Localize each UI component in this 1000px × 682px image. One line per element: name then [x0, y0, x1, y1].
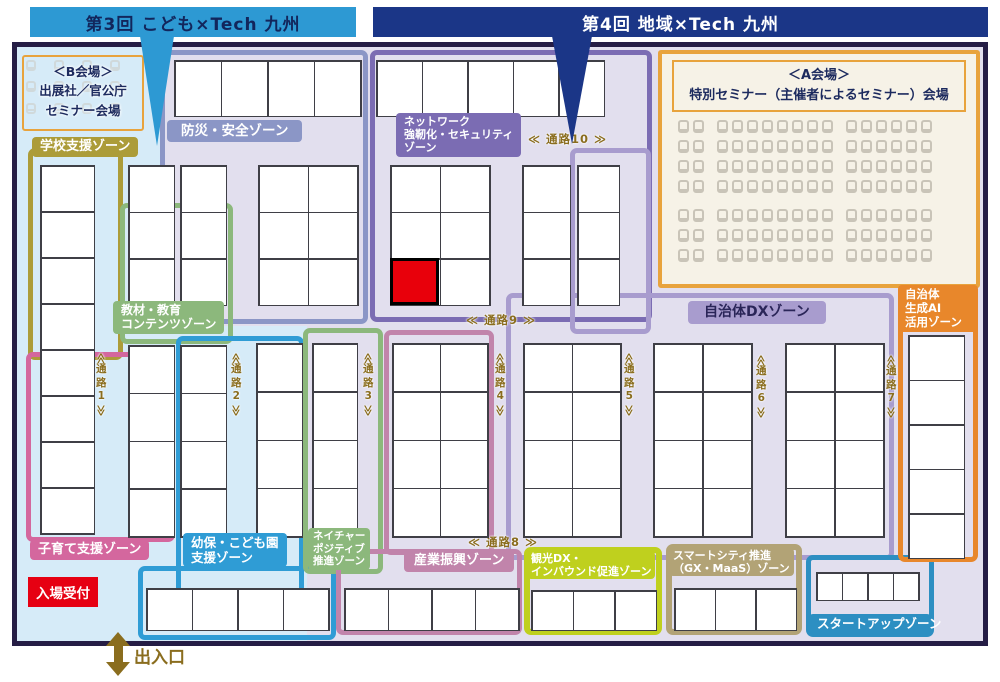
seat-icon	[777, 160, 788, 173]
arrow-stem	[114, 646, 123, 662]
seat-icon	[921, 140, 932, 153]
booth	[579, 213, 619, 258]
zone-label-school: 学校支援ゾーン	[32, 137, 138, 157]
seat-icon	[792, 120, 803, 133]
booth	[573, 441, 620, 488]
seat-icon	[906, 140, 917, 153]
booth	[258, 489, 302, 536]
seat-icon	[807, 180, 818, 193]
booth	[525, 345, 572, 392]
seat-icon	[876, 140, 887, 153]
seat-row	[678, 209, 932, 222]
booth-grid-col3-lower	[180, 345, 227, 538]
booth-grid-col4-lower	[256, 343, 303, 538]
zone-label-yoho: 幼保・こども園支援ゾーン	[183, 533, 287, 567]
booth	[130, 490, 174, 536]
zone-label-childcare: 子育て支援ゾーン	[30, 540, 149, 560]
seat-icon	[678, 160, 689, 173]
seat-icon	[678, 180, 689, 193]
seat-icon	[717, 160, 728, 173]
booth	[42, 443, 94, 488]
booth	[787, 441, 835, 488]
booth	[258, 393, 302, 440]
arrow-up-icon	[106, 632, 130, 646]
seat-icon	[822, 249, 833, 262]
booth	[260, 260, 308, 305]
seat-icon	[822, 209, 833, 222]
seat-icon	[876, 160, 887, 173]
seat-icon	[822, 140, 833, 153]
banner-kodomo-tech: 第3回 こども×Tech 九州	[30, 7, 356, 37]
booth	[910, 337, 964, 380]
seat-row	[678, 120, 932, 133]
seat-icon	[906, 180, 917, 193]
booth	[378, 62, 422, 116]
seat-icon	[777, 229, 788, 242]
booth	[130, 347, 174, 393]
seat-row	[678, 229, 932, 242]
seat-icon	[792, 229, 803, 242]
venue-floor-map: 第3回 こども×Tech 九州 第4回 地域×Tech 九州 ＜B会場＞出展社／…	[0, 0, 1000, 682]
booth	[716, 590, 755, 630]
booth	[182, 347, 226, 393]
booth	[258, 345, 302, 392]
seat-icon	[792, 180, 803, 193]
seat-icon	[732, 120, 743, 133]
seat-icon	[906, 209, 917, 222]
booth	[258, 441, 302, 488]
seat-icon	[717, 180, 728, 193]
booth-grid-bosai-grid	[258, 165, 359, 306]
seat-icon	[732, 160, 743, 173]
booth	[818, 574, 842, 600]
booth	[787, 393, 835, 440]
booth	[441, 393, 487, 440]
seat-icon	[906, 160, 917, 173]
booth	[130, 167, 174, 212]
booth-grid-dx-grid-1	[523, 343, 622, 538]
seat-icon	[861, 249, 872, 262]
booth	[346, 590, 388, 630]
seat-icon	[747, 180, 758, 193]
seat-icon	[891, 249, 902, 262]
zone-label-startup: スタートアップゾーン	[809, 614, 931, 633]
booth	[910, 470, 964, 513]
zone-label-dx: 自治体DXゾーン	[688, 301, 826, 324]
booth-grid-network-col-right	[522, 165, 571, 306]
seat-icon	[777, 249, 788, 262]
seat-icon	[678, 229, 689, 242]
booth	[524, 167, 570, 212]
seat-icon	[717, 209, 728, 222]
seat-icon	[693, 249, 704, 262]
booth	[314, 393, 357, 440]
booth-grid-dx-arm-col	[577, 165, 620, 306]
seat-icon	[921, 229, 932, 242]
seat-icon	[876, 180, 887, 193]
booth	[676, 590, 715, 630]
seat-icon	[693, 229, 704, 242]
seat-icon	[861, 229, 872, 242]
booth	[655, 489, 703, 536]
booth	[441, 213, 489, 258]
seat-icon	[822, 160, 833, 173]
booth	[757, 590, 796, 630]
booth	[524, 213, 570, 258]
booth	[389, 590, 431, 630]
booth	[441, 167, 489, 212]
seat-icon	[846, 180, 857, 193]
booth	[836, 393, 884, 440]
booth	[269, 62, 314, 116]
seat-icon	[846, 229, 857, 242]
booth	[525, 393, 572, 440]
aisle-4-label: ≪通路4≫	[495, 352, 506, 415]
seat-icon	[846, 140, 857, 153]
seat-icon	[906, 229, 917, 242]
seat-icon	[822, 229, 833, 242]
seat-icon	[678, 249, 689, 262]
seat-row	[678, 160, 932, 173]
booth-grid-smart-row	[674, 588, 797, 631]
aisle-9-label: ≪ 通路9 ≫	[466, 312, 536, 328]
booth	[441, 489, 487, 536]
seat-icon	[861, 120, 872, 133]
seat-icon	[891, 160, 902, 173]
booth	[579, 167, 619, 212]
seat-icon	[693, 140, 704, 153]
hall-a-seats	[678, 120, 932, 262]
seat-icon	[921, 160, 932, 173]
hall-b-label: ＜B会場＞出展社／官公庁セミナー会場	[24, 62, 142, 120]
zone-label-nature: ネイチャーポジティブ推進ゾーン	[308, 528, 370, 570]
seat-icon	[807, 160, 818, 173]
booth-grid-nature-col	[312, 343, 358, 538]
booth	[525, 489, 572, 536]
seat-icon	[762, 120, 773, 133]
seat-icon	[717, 140, 728, 153]
booth	[42, 351, 94, 396]
seat-icon	[876, 249, 887, 262]
booth	[182, 490, 226, 536]
seat-icon	[747, 209, 758, 222]
booth	[836, 489, 884, 536]
zone-label-network: ネットワーク強靭化・セキュリティゾーン	[396, 113, 521, 157]
seat-icon	[921, 120, 932, 133]
booth	[573, 489, 620, 536]
booth-grid-yoho-bottom-row	[146, 588, 330, 631]
booth	[910, 515, 964, 558]
booth	[533, 592, 573, 630]
seat-icon	[732, 180, 743, 193]
seat-icon	[822, 180, 833, 193]
seat-icon	[762, 249, 773, 262]
seat-icon	[876, 120, 887, 133]
aisle-1-label: ≪通路1≫	[96, 352, 107, 415]
booth-grid-dx-grid-2	[653, 343, 753, 538]
booth	[182, 213, 226, 258]
seat-icon	[846, 209, 857, 222]
aisle-5-label: ≪通路5≫	[624, 352, 635, 415]
booth	[130, 394, 174, 440]
booth	[704, 489, 752, 536]
seat-icon	[777, 209, 788, 222]
seat-row	[678, 249, 932, 262]
booth	[836, 441, 884, 488]
booth	[394, 441, 440, 488]
seat-icon	[861, 140, 872, 153]
seat-icon	[732, 229, 743, 242]
seat-icon	[807, 140, 818, 153]
booth	[843, 574, 867, 600]
booth-grid-dx-grid-3	[785, 343, 885, 538]
booth	[42, 305, 94, 350]
booth	[525, 441, 572, 488]
booth	[260, 213, 308, 258]
seat-icon	[747, 160, 758, 173]
booth-grid-col2-upper	[128, 165, 175, 306]
booth	[787, 345, 835, 392]
seat-icon	[693, 180, 704, 193]
seat-icon	[861, 160, 872, 173]
booth	[574, 592, 614, 630]
seat-icon	[807, 209, 818, 222]
booth	[239, 590, 283, 630]
seat-icon	[732, 249, 743, 262]
seat-icon	[747, 249, 758, 262]
seat-icon	[717, 229, 728, 242]
seat-icon	[777, 120, 788, 133]
booth	[182, 394, 226, 440]
booth	[130, 442, 174, 488]
booth	[787, 489, 835, 536]
booth	[42, 259, 94, 304]
seat-icon	[762, 160, 773, 173]
seat-icon	[846, 160, 857, 173]
booth-grid-sangyo-upper-grid	[392, 343, 489, 538]
aisle-10-label: ≪ 通路10 ≫	[528, 131, 607, 147]
booth	[182, 442, 226, 488]
zone-label-kanko: 観光DX・インバウンド促進ゾーン	[527, 551, 655, 579]
arrow-down-icon	[106, 662, 130, 676]
booth-grid-startup-row	[816, 572, 920, 601]
booth	[433, 590, 475, 630]
seat-icon	[807, 120, 818, 133]
booth	[469, 62, 513, 116]
reception-badge: 入場受付	[28, 577, 98, 607]
zone-label-smart-city: スマートシティ推進（GX・MaaS）ゾーン	[669, 548, 794, 576]
seat-icon	[777, 180, 788, 193]
booth	[655, 345, 703, 392]
seat-icon	[777, 140, 788, 153]
seat-icon	[693, 160, 704, 173]
seat-icon	[792, 140, 803, 153]
booth-grid-ai-col	[908, 335, 965, 559]
seat-icon	[792, 249, 803, 262]
booth	[392, 213, 440, 258]
booth	[524, 260, 570, 305]
booth-grid-bosai-top-row	[174, 60, 362, 117]
booth	[476, 590, 518, 630]
seat-icon	[876, 229, 887, 242]
seat-icon	[921, 209, 932, 222]
seat-icon	[861, 209, 872, 222]
booth	[315, 62, 360, 116]
seat-icon	[747, 229, 758, 242]
booth	[910, 381, 964, 424]
booth	[441, 260, 489, 305]
seat-icon	[891, 180, 902, 193]
booth	[130, 260, 174, 305]
booth	[704, 345, 752, 392]
booth	[441, 441, 487, 488]
seat-icon	[807, 249, 818, 262]
booth	[573, 393, 620, 440]
seat-icon	[846, 120, 857, 133]
booth	[182, 260, 226, 305]
seat-icon	[678, 140, 689, 153]
booth	[42, 489, 94, 534]
banner-chiiki-tech: 第4回 地域×Tech 九州	[373, 7, 988, 37]
booth	[42, 397, 94, 442]
seat-icon	[762, 229, 773, 242]
booth	[441, 345, 487, 392]
seat-icon	[747, 120, 758, 133]
booth	[655, 441, 703, 488]
booth	[394, 393, 440, 440]
hall-a-label: ＜A会場＞特別セミナー（主催者によるセミナー）会場	[672, 60, 966, 112]
zone-label-bosai: 防災・安全ゾーン	[167, 120, 302, 142]
booth	[910, 426, 964, 469]
booth	[573, 345, 620, 392]
booth	[309, 213, 357, 258]
booth	[284, 590, 328, 630]
booth-grid-col3-upper	[180, 165, 227, 306]
booth	[42, 213, 94, 258]
seat-icon	[906, 120, 917, 133]
seat-icon	[717, 249, 728, 262]
booth-grid-sangyo-bottom-row	[344, 588, 520, 631]
entrance-label: 出入口	[134, 643, 185, 668]
seat-icon	[846, 249, 857, 262]
seat-icon	[678, 209, 689, 222]
booth	[309, 260, 357, 305]
aisle-7-label: ≪通路7≫	[886, 354, 897, 417]
booth-grid-school-col	[40, 165, 95, 535]
booth	[704, 441, 752, 488]
seat-icon	[747, 140, 758, 153]
seat-icon	[717, 120, 728, 133]
seat-row	[678, 140, 932, 153]
seat-icon	[921, 180, 932, 193]
booth	[314, 345, 357, 392]
booth	[514, 62, 558, 116]
seat-icon	[861, 180, 872, 193]
booth	[655, 393, 703, 440]
booth	[176, 62, 221, 116]
booth	[260, 167, 308, 212]
zone-label-ai: 自治体生成AI活用ゾーン	[898, 285, 978, 332]
booth	[394, 345, 440, 392]
seat-row	[678, 180, 932, 193]
seat-icon	[906, 249, 917, 262]
booth	[869, 574, 893, 600]
booth	[423, 62, 467, 116]
aisle-2-label: ≪通路2≫	[231, 352, 242, 415]
entrance-arrow-icon	[106, 632, 130, 676]
booth-grid-kanko-row	[531, 590, 657, 631]
seat-icon	[762, 180, 773, 193]
booth	[314, 441, 357, 488]
booth	[130, 213, 174, 258]
seat-icon	[822, 120, 833, 133]
booth	[579, 260, 619, 305]
seat-icon	[762, 140, 773, 153]
seat-icon	[876, 209, 887, 222]
seat-icon	[693, 120, 704, 133]
booth	[193, 590, 237, 630]
seat-icon	[678, 120, 689, 133]
booth	[394, 489, 440, 536]
aisle-3-label: ≪通路3≫	[363, 352, 374, 415]
seat-icon	[891, 140, 902, 153]
zone-label-sangyo: 産業振興ゾーン	[404, 550, 514, 572]
zone-label-kyozai: 教材・教育コンテンツゾーン	[113, 301, 224, 334]
seat-icon	[732, 209, 743, 222]
booth	[42, 167, 94, 212]
booth-grid-col2-lower	[128, 345, 175, 538]
seat-icon	[807, 229, 818, 242]
booth	[309, 167, 357, 212]
booth	[704, 393, 752, 440]
seat-icon	[693, 209, 704, 222]
highlighted-booth	[390, 258, 439, 305]
booth	[222, 62, 267, 116]
seat-icon	[891, 209, 902, 222]
seat-icon	[891, 120, 902, 133]
booth	[392, 167, 440, 212]
booth	[894, 574, 918, 600]
booth	[616, 592, 656, 630]
seat-icon	[732, 140, 743, 153]
seat-icon	[921, 249, 932, 262]
seat-icon	[792, 209, 803, 222]
booth	[148, 590, 192, 630]
booth	[182, 167, 226, 212]
aisle-6-label: ≪通路6≫	[756, 354, 767, 417]
booth	[836, 345, 884, 392]
seat-icon	[792, 160, 803, 173]
seat-icon	[891, 229, 902, 242]
seat-icon	[762, 209, 773, 222]
